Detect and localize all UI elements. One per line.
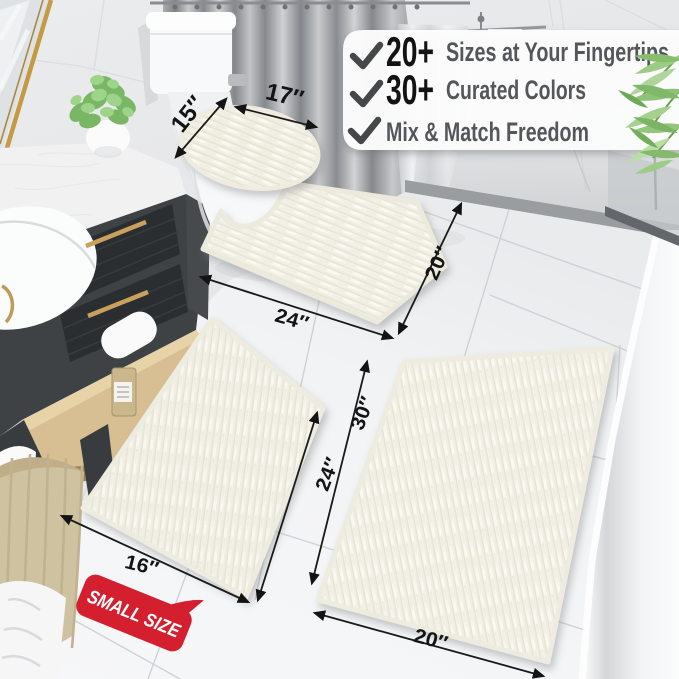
svg-text:Sizes at Your Fingertips: Sizes at Your Fingertips: [446, 37, 669, 67]
svg-text:Curated Colors: Curated Colors: [446, 75, 586, 105]
svg-text:30+: 30+: [386, 66, 434, 113]
svg-text:Mix & Match Freedom: Mix & Match Freedom: [386, 117, 589, 147]
